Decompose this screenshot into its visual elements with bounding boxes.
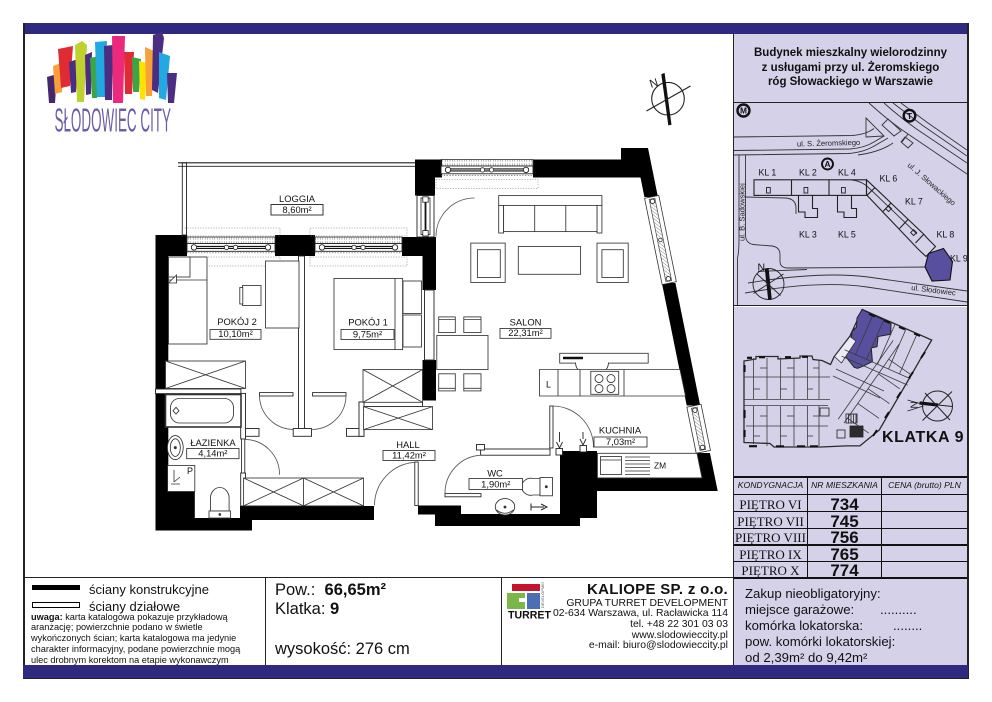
svg-text:A: A <box>824 159 830 169</box>
svg-text:WC: WC <box>487 468 503 479</box>
svg-text:22,31m²: 22,31m² <box>508 327 542 338</box>
svg-text:ul. S. Żeromskiego: ul. S. Żeromskiego <box>797 138 861 149</box>
svg-text:9,75m²: 9,75m² <box>353 328 382 339</box>
svg-text:N: N <box>648 77 660 91</box>
svg-text:POKÓJ 1: POKÓJ 1 <box>348 317 388 328</box>
svg-text:KL 7: KL 7 <box>905 197 923 207</box>
svg-text:KL 3: KL 3 <box>799 230 817 240</box>
svg-text:P: P <box>187 466 193 476</box>
svg-text:7,03m²: 7,03m² <box>606 436 635 447</box>
svg-text:KL 2: KL 2 <box>799 168 817 178</box>
svg-text:4,14m²: 4,14m² <box>198 448 227 459</box>
svg-text:8,60m²: 8,60m² <box>282 204 311 215</box>
svg-text:N: N <box>758 262 766 274</box>
svg-text:KL 4: KL 4 <box>838 168 856 178</box>
svg-text:ul. Słodowiec: ul. Słodowiec <box>911 283 957 297</box>
svg-text:TURRET: TURRET <box>508 610 551 622</box>
svg-text:10,10m²: 10,10m² <box>218 328 252 339</box>
svg-text:ŁAZIENKA: ŁAZIENKA <box>190 437 236 448</box>
svg-text:L: L <box>546 380 551 390</box>
svg-text:11,42m²: 11,42m² <box>392 449 426 460</box>
svg-text:KLATKA 9: KLATKA 9 <box>882 429 964 446</box>
svg-text:DEVELOPMENT: DEVELOPMENT <box>540 582 545 608</box>
svg-text:KL 1: KL 1 <box>759 168 777 178</box>
svg-text:KL 8: KL 8 <box>937 230 955 240</box>
svg-text:SŁODOWIEC CITY: SŁODOWIEC CITY <box>55 102 172 135</box>
svg-text:KL 9: KL 9 <box>950 254 967 264</box>
svg-text:ZM: ZM <box>654 461 666 471</box>
svg-text:KL 5: KL 5 <box>838 230 856 240</box>
svg-text:ul. B. Sadowskiej: ul. B. Sadowskiej <box>738 183 747 241</box>
svg-text:M: M <box>740 106 747 116</box>
svg-text:POKÓJ 2: POKÓJ 2 <box>217 316 257 327</box>
svg-text:KUCHNIA: KUCHNIA <box>599 425 642 436</box>
svg-text:T: T <box>907 111 913 121</box>
svg-text:LOGGIA: LOGGIA <box>279 193 316 204</box>
svg-text:KL 6: KL 6 <box>880 174 898 184</box>
svg-text:SALON: SALON <box>510 317 542 328</box>
svg-text:1,90m²: 1,90m² <box>481 478 510 489</box>
svg-text:N: N <box>910 401 921 408</box>
